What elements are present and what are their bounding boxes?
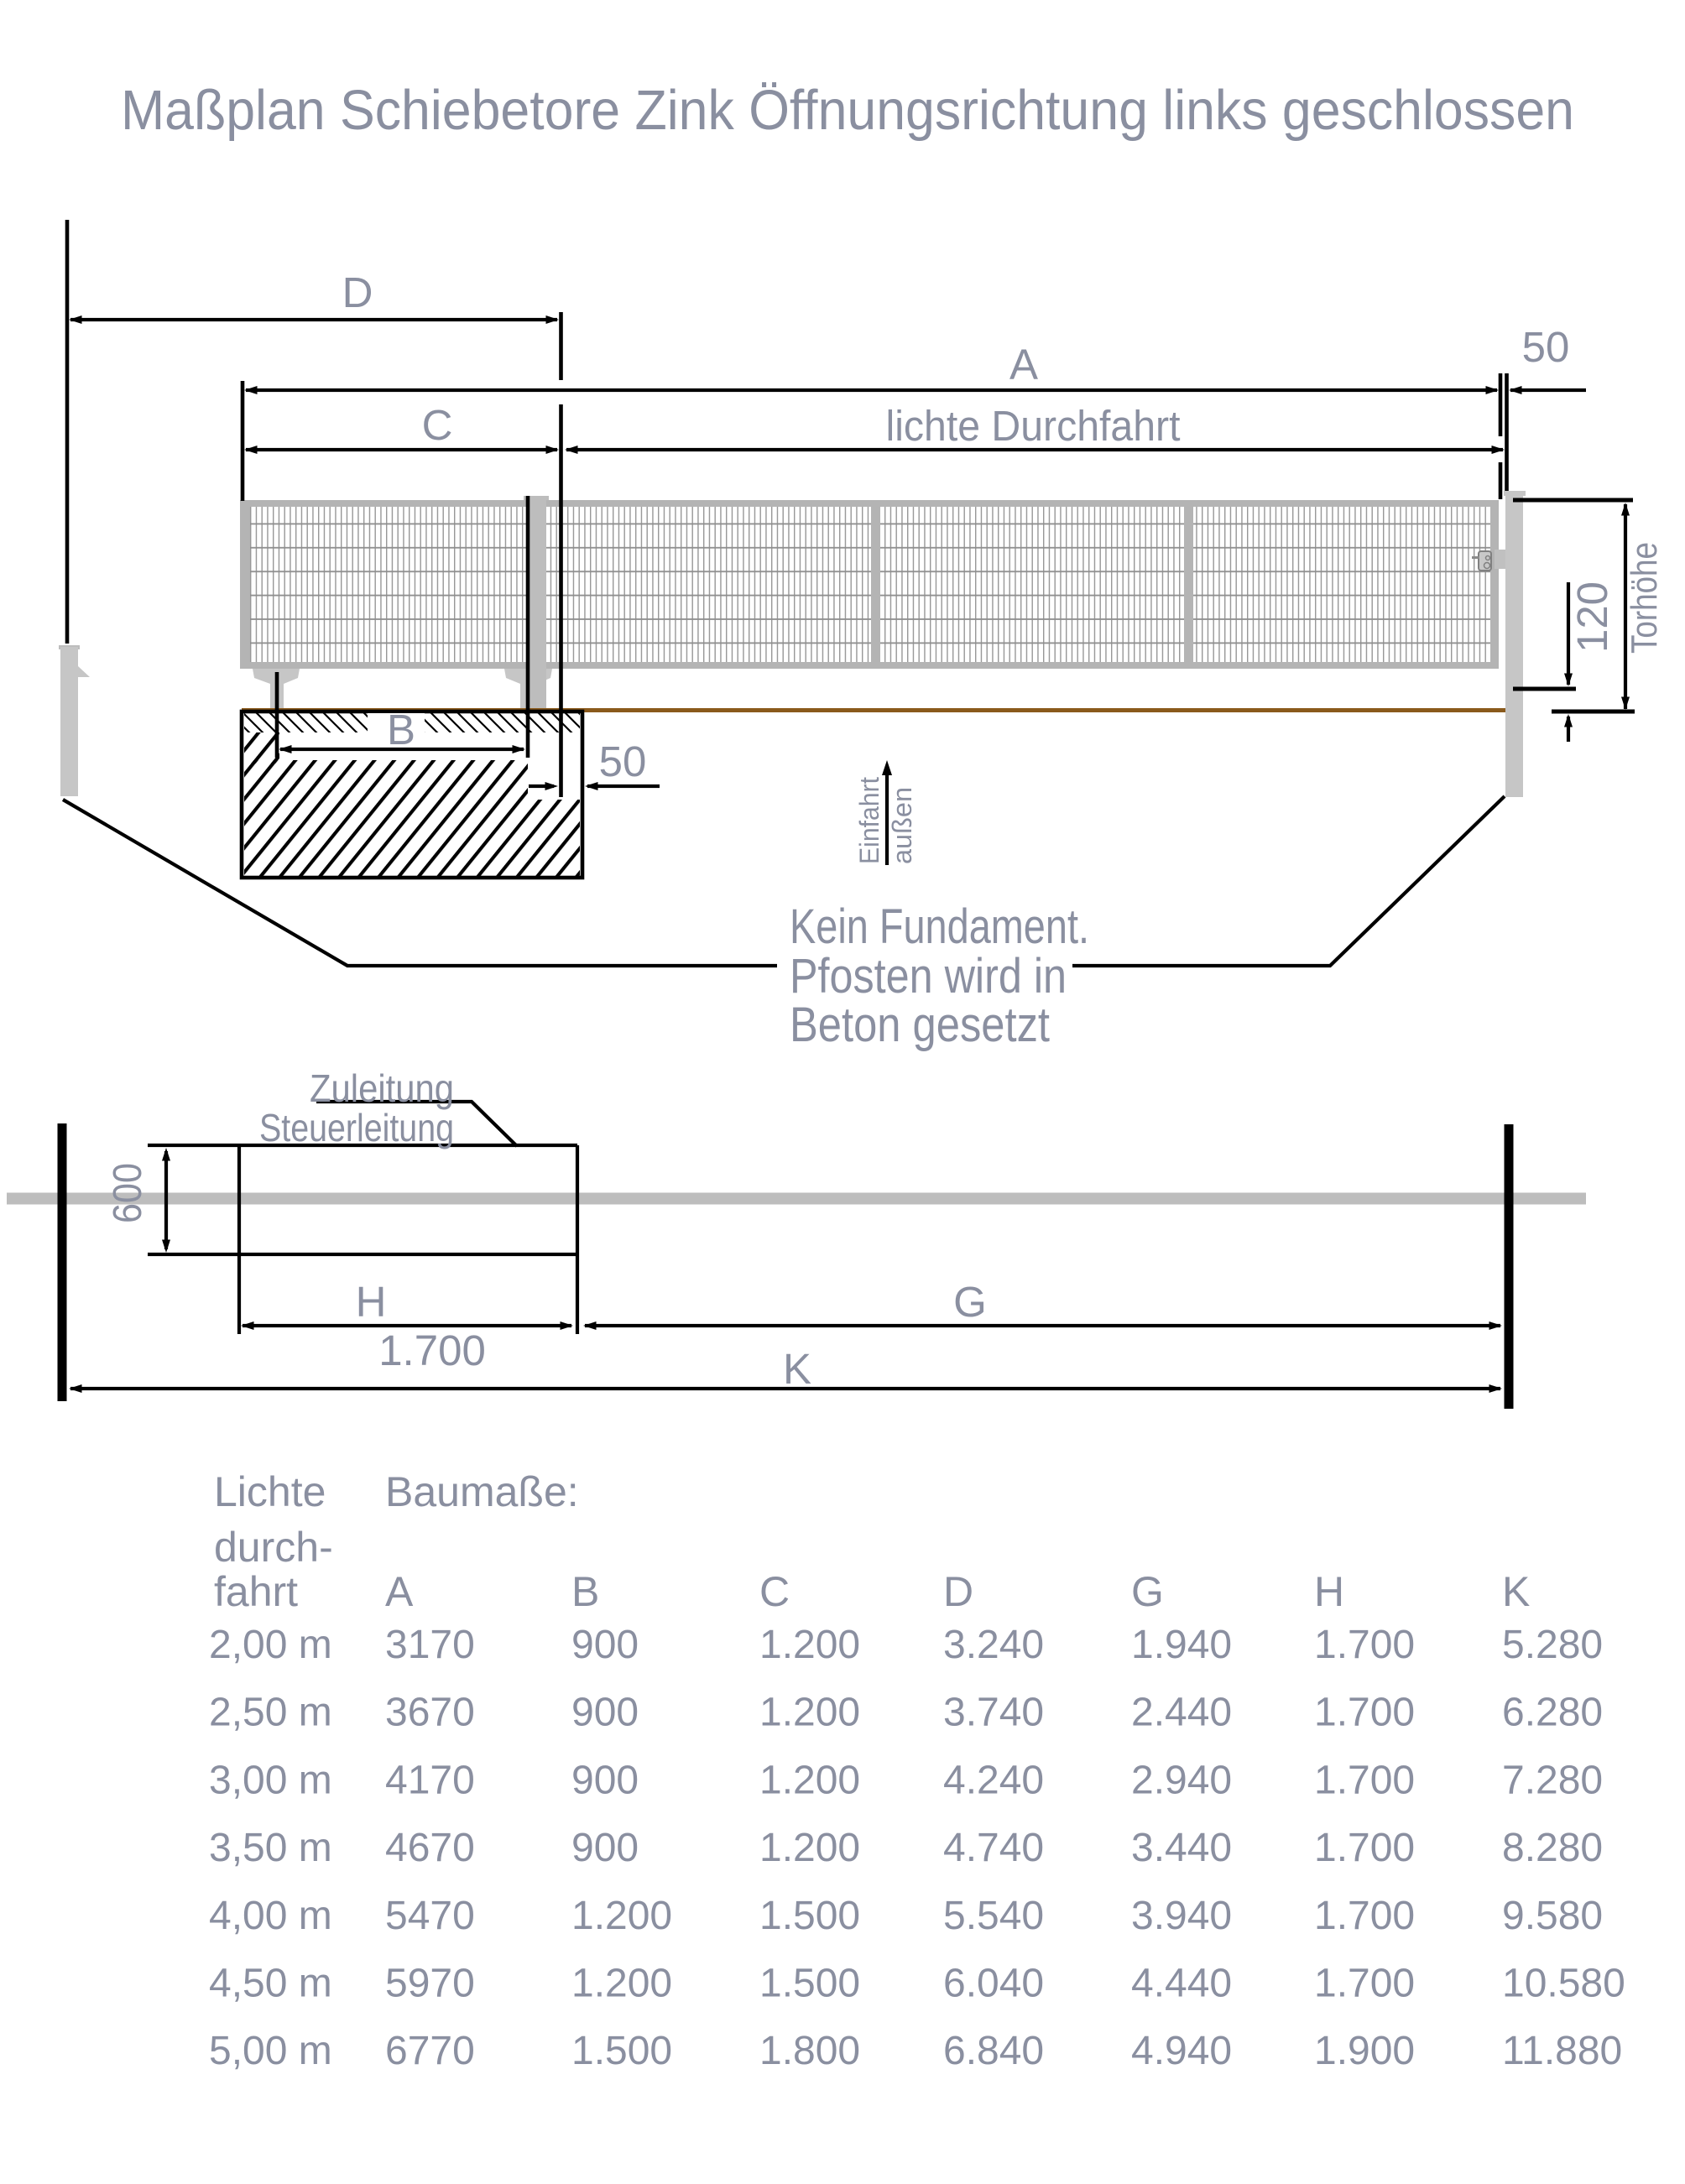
svg-text:8.280: 8.280 (1502, 1826, 1603, 1870)
svg-text:6.280: 6.280 (1502, 1691, 1603, 1735)
svg-text:120: 120 (1568, 581, 1616, 653)
svg-text:1.700: 1.700 (1314, 1826, 1415, 1870)
svg-text:1.700: 1.700 (1314, 1894, 1415, 1938)
svg-text:900: 900 (571, 1691, 639, 1735)
svg-text:H: H (356, 1278, 387, 1326)
svg-text:Steuerleitung: Steuerleitung (259, 1106, 454, 1149)
svg-text:3.440: 3.440 (1131, 1826, 1232, 1870)
svg-text:2,50 m: 2,50 m (209, 1691, 332, 1735)
svg-text:Baumaße:: Baumaße: (385, 1468, 579, 1515)
svg-text:900: 900 (571, 1758, 639, 1802)
svg-text:3.940: 3.940 (1131, 1894, 1232, 1938)
svg-text:4,50 m: 4,50 m (209, 1962, 332, 2006)
svg-text:4170: 4170 (385, 1758, 475, 1802)
svg-text:5.280: 5.280 (1502, 1623, 1603, 1667)
svg-text:Einfahrt: Einfahrt (854, 777, 884, 864)
svg-text:durch-: durch- (214, 1524, 333, 1571)
svg-text:Pfosten wird in: Pfosten wird in (790, 949, 1067, 1003)
svg-text:G: G (953, 1278, 987, 1326)
svg-text:A: A (1009, 341, 1038, 388)
svg-text:G: G (1131, 1568, 1164, 1615)
svg-text:5,00 m: 5,00 m (209, 2029, 332, 2073)
svg-text:H: H (1314, 1568, 1344, 1615)
svg-text:6.840: 6.840 (943, 2029, 1044, 2073)
svg-text:50: 50 (1522, 323, 1570, 371)
svg-text:K: K (783, 1345, 811, 1393)
svg-text:5970: 5970 (385, 1962, 475, 2006)
svg-text:K: K (1502, 1568, 1530, 1615)
svg-text:3.740: 3.740 (943, 1691, 1044, 1735)
svg-text:4670: 4670 (385, 1826, 475, 1870)
svg-text:3,00 m: 3,00 m (209, 1758, 332, 1802)
svg-text:600: 600 (106, 1163, 150, 1223)
svg-text:4.440: 4.440 (1131, 1962, 1232, 2006)
svg-text:Maßplan Schiebetore Zink Öffnu: Maßplan Schiebetore Zink Öffnungsrichtun… (121, 79, 1574, 142)
svg-text:lichte Durchfahrt: lichte Durchfahrt (886, 402, 1181, 450)
svg-text:B: B (387, 706, 415, 753)
svg-text:6770: 6770 (385, 2029, 475, 2073)
svg-text:1.700: 1.700 (1314, 1962, 1415, 2006)
svg-text:11.880: 11.880 (1502, 2029, 1622, 2073)
svg-text:2.440: 2.440 (1131, 1691, 1232, 1735)
svg-text:3170: 3170 (385, 1623, 475, 1667)
svg-text:2.940: 2.940 (1131, 1758, 1232, 1802)
svg-text:fahrt: fahrt (214, 1568, 298, 1615)
svg-text:D: D (342, 268, 373, 316)
svg-text:Torhöhe: Torhöhe (1624, 542, 1665, 654)
svg-text:6.040: 6.040 (943, 1962, 1044, 2006)
svg-text:Lichte: Lichte (214, 1468, 326, 1515)
svg-text:1.200: 1.200 (759, 1826, 860, 1870)
svg-text:4.240: 4.240 (943, 1758, 1044, 1802)
svg-text:D: D (943, 1568, 973, 1615)
svg-text:4.740: 4.740 (943, 1826, 1044, 1870)
svg-text:1.700: 1.700 (1314, 1623, 1415, 1667)
svg-text:B: B (571, 1568, 599, 1615)
svg-text:9.580: 9.580 (1502, 1894, 1603, 1938)
svg-text:1.200: 1.200 (759, 1623, 860, 1667)
svg-text:1.900: 1.900 (1314, 2029, 1415, 2073)
svg-text:1.200: 1.200 (571, 1894, 672, 1938)
svg-text:Beton gesetzt: Beton gesetzt (790, 998, 1050, 1052)
svg-text:Zuleitung: Zuleitung (310, 1066, 454, 1110)
svg-text:1.200: 1.200 (759, 1758, 860, 1802)
svg-text:1.800: 1.800 (759, 2029, 860, 2073)
svg-text:10.580: 10.580 (1502, 1962, 1625, 2006)
svg-text:1.200: 1.200 (759, 1691, 860, 1735)
svg-text:C: C (759, 1568, 790, 1615)
svg-text:A: A (385, 1568, 414, 1615)
svg-text:1.500: 1.500 (759, 1962, 860, 2006)
svg-text:900: 900 (571, 1826, 639, 1870)
svg-text:2,00 m: 2,00 m (209, 1623, 332, 1667)
svg-text:1.700: 1.700 (1314, 1691, 1415, 1735)
svg-text:7.280: 7.280 (1502, 1758, 1603, 1802)
svg-text:4.940: 4.940 (1131, 2029, 1232, 2073)
svg-text:1.700: 1.700 (378, 1327, 486, 1374)
svg-text:Kein Fundament.: Kein Fundament. (790, 899, 1089, 954)
svg-text:1.940: 1.940 (1131, 1623, 1232, 1667)
svg-text:1.500: 1.500 (571, 2029, 672, 2073)
svg-text:1.200: 1.200 (571, 1962, 672, 2006)
svg-text:3,50 m: 3,50 m (209, 1826, 332, 1870)
svg-text:5470: 5470 (385, 1894, 475, 1938)
svg-text:außen: außen (887, 787, 917, 864)
svg-text:C: C (422, 401, 453, 449)
svg-text:50: 50 (599, 738, 647, 785)
svg-text:900: 900 (571, 1623, 639, 1667)
svg-text:1.500: 1.500 (759, 1894, 860, 1938)
svg-text:3670: 3670 (385, 1691, 475, 1735)
svg-text:1.700: 1.700 (1314, 1758, 1415, 1802)
svg-text:3.240: 3.240 (943, 1623, 1044, 1667)
svg-text:4,00 m: 4,00 m (209, 1894, 332, 1938)
svg-text:5.540: 5.540 (943, 1894, 1044, 1938)
